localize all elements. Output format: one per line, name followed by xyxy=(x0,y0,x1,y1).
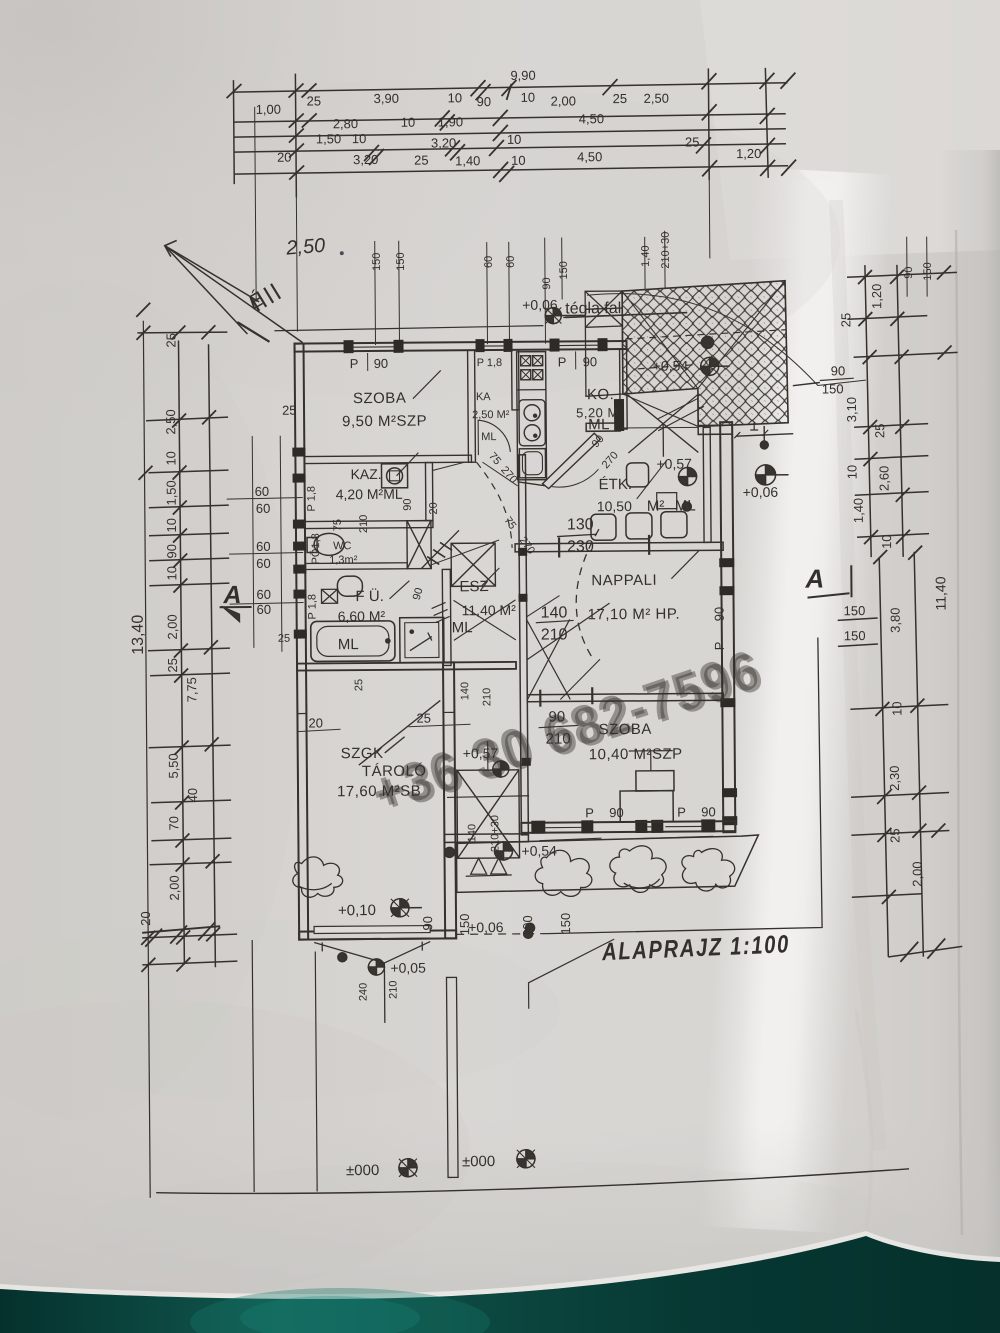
svg-text:+0,54: +0,54 xyxy=(521,843,557,859)
svg-text:25: 25 xyxy=(414,153,429,168)
svg-text:3,80: 3,80 xyxy=(888,608,903,633)
svg-text:10: 10 xyxy=(507,132,522,147)
svg-text:10,50: 10,50 xyxy=(597,498,632,514)
svg-text:2,80: 2,80 xyxy=(333,116,358,131)
svg-text:11,40: 11,40 xyxy=(932,576,948,610)
svg-text:10: 10 xyxy=(164,518,179,533)
svg-text:P: P xyxy=(585,805,594,820)
svg-text:70: 70 xyxy=(166,816,181,831)
svg-text:SZGK: SZGK xyxy=(341,745,384,762)
svg-text:5,50: 5,50 xyxy=(166,753,181,778)
svg-text:10: 10 xyxy=(879,534,894,549)
svg-text:90: 90 xyxy=(701,804,716,819)
svg-text:+0,05: +0,05 xyxy=(390,960,426,976)
svg-text:60: 60 xyxy=(255,484,270,499)
svg-text:10: 10 xyxy=(401,115,416,130)
svg-text:1,40: 1,40 xyxy=(640,245,652,267)
svg-text:10: 10 xyxy=(889,701,904,716)
svg-text:ML: ML xyxy=(675,497,696,514)
svg-text:90: 90 xyxy=(831,363,846,378)
svg-text:90: 90 xyxy=(583,354,598,369)
svg-text:±000: ±000 xyxy=(346,1162,379,1179)
svg-text:150: 150 xyxy=(558,261,570,279)
svg-text:A: A xyxy=(804,563,824,593)
svg-text:90: 90 xyxy=(402,498,414,510)
svg-text:150: 150 xyxy=(822,381,844,396)
svg-text:+0,06: +0,06 xyxy=(522,297,558,313)
svg-text:60: 60 xyxy=(257,602,272,617)
svg-text:210+30: 210+30 xyxy=(660,232,672,269)
svg-text:10: 10 xyxy=(844,465,859,480)
svg-text:2,50: 2,50 xyxy=(284,235,326,260)
svg-text:P: P xyxy=(558,354,567,369)
svg-text:90: 90 xyxy=(541,277,553,289)
svg-text:40: 40 xyxy=(185,788,200,803)
svg-text:150: 150 xyxy=(371,253,383,271)
svg-text:90: 90 xyxy=(420,916,435,931)
svg-text:KA: KA xyxy=(476,391,491,403)
svg-text:90: 90 xyxy=(374,356,389,371)
svg-text:90: 90 xyxy=(712,607,727,622)
svg-text:60: 60 xyxy=(256,587,271,602)
svg-text:10: 10 xyxy=(352,131,367,146)
svg-text:25: 25 xyxy=(165,658,180,673)
svg-text:WC: WC xyxy=(333,540,351,552)
svg-text:140: 140 xyxy=(459,682,471,700)
svg-text:150: 150 xyxy=(558,913,573,935)
svg-text:210: 210 xyxy=(481,688,493,706)
svg-text:F Ü.: F Ü. xyxy=(355,587,383,605)
svg-text:9,90: 9,90 xyxy=(510,68,535,83)
svg-text:P 1,8: P 1,8 xyxy=(306,486,318,512)
svg-text:25: 25 xyxy=(613,91,628,106)
svg-text:11,40 M²: 11,40 M² xyxy=(462,602,517,618)
svg-text:140: 140 xyxy=(466,824,478,842)
svg-text:7,75: 7,75 xyxy=(184,677,199,702)
svg-text:ML: ML xyxy=(588,416,610,433)
svg-text:2,00: 2,00 xyxy=(165,614,180,639)
svg-text:20: 20 xyxy=(277,150,292,165)
svg-text:2,50: 2,50 xyxy=(644,91,669,106)
svg-text:210: 210 xyxy=(358,515,370,533)
svg-text:4,20 M²ML: 4,20 M²ML xyxy=(336,486,403,503)
svg-text:1,40: 1,40 xyxy=(455,153,480,168)
svg-text:2,00: 2,00 xyxy=(910,861,925,886)
svg-text:230: 230 xyxy=(567,538,594,555)
svg-text:KO.: KO. xyxy=(587,386,614,403)
svg-text:KAZ.: KAZ. xyxy=(350,466,381,482)
svg-text:1,20: 1,20 xyxy=(869,284,884,309)
svg-text:SZOBA: SZOBA xyxy=(353,390,406,407)
svg-text:P 1,8: P 1,8 xyxy=(477,357,503,369)
svg-text:20: 20 xyxy=(428,502,440,514)
svg-text:ML: ML xyxy=(452,619,473,636)
svg-text:75: 75 xyxy=(332,519,344,531)
svg-text:+0,57: +0,57 xyxy=(656,455,692,471)
svg-text:150: 150 xyxy=(844,603,866,618)
svg-text:+0,54: +0,54 xyxy=(653,358,689,374)
svg-text:150: 150 xyxy=(395,252,407,270)
svg-text:60: 60 xyxy=(256,501,271,516)
svg-text:240: 240 xyxy=(358,983,370,1001)
svg-text:2,50: 2,50 xyxy=(163,409,178,434)
svg-text:3,10: 3,10 xyxy=(844,397,859,422)
svg-text:2,60: 2,60 xyxy=(876,466,891,491)
svg-text:10: 10 xyxy=(163,451,178,466)
svg-text:130: 130 xyxy=(567,516,594,533)
svg-text:tégla fal: tégla fal xyxy=(565,300,621,317)
svg-text:60: 60 xyxy=(256,539,271,554)
svg-text:+0,06: +0,06 xyxy=(468,919,504,935)
svg-text:210: 210 xyxy=(388,980,400,998)
svg-text:17,10 M² HP.: 17,10 M² HP. xyxy=(588,606,681,624)
svg-text:13,40: 13,40 xyxy=(130,615,147,655)
svg-text:1,50: 1,50 xyxy=(164,480,179,505)
svg-text:25: 25 xyxy=(282,403,297,418)
svg-text:A: A xyxy=(222,581,241,609)
svg-text:1,20: 1,20 xyxy=(736,146,761,161)
svg-text:25: 25 xyxy=(163,333,178,348)
svg-text:M²: M² xyxy=(647,498,665,515)
svg-text:2,00: 2,00 xyxy=(551,93,576,108)
svg-text:P 1,8: P 1,8 xyxy=(306,594,318,620)
svg-text:+0,10: +0,10 xyxy=(338,902,376,919)
svg-text:NAPPALI: NAPPALI xyxy=(591,572,657,590)
svg-text:ÉTK.: ÉTK. xyxy=(599,476,632,493)
svg-text:1,50: 1,50 xyxy=(316,131,341,146)
svg-text:2,50 M²: 2,50 M² xyxy=(472,409,510,421)
svg-text:1,00: 1,00 xyxy=(256,102,281,117)
svg-text:150: 150 xyxy=(457,914,472,936)
svg-text:25: 25 xyxy=(307,93,322,108)
svg-text:20: 20 xyxy=(138,911,153,926)
svg-text:ML: ML xyxy=(338,636,359,653)
svg-text:90: 90 xyxy=(164,544,179,559)
svg-text:25: 25 xyxy=(887,828,902,843)
svg-text:9,50 M²SZP: 9,50 M²SZP xyxy=(342,413,427,431)
svg-text:90: 90 xyxy=(609,805,624,820)
svg-text:210: 210 xyxy=(541,626,568,643)
svg-text:PÖ1,8: PÖ1,8 xyxy=(310,533,322,564)
svg-text:10: 10 xyxy=(448,90,463,105)
svg-text:2,00: 2,00 xyxy=(167,875,182,900)
svg-text:ML: ML xyxy=(481,431,496,443)
svg-text:210+30: 210+30 xyxy=(489,815,501,852)
svg-text:3,90: 3,90 xyxy=(374,91,399,106)
svg-text:1,40: 1,40 xyxy=(851,498,866,523)
svg-text:25: 25 xyxy=(416,711,431,726)
svg-text:60: 60 xyxy=(483,256,495,268)
svg-text:1,3m²: 1,3m² xyxy=(329,554,358,566)
svg-text:10: 10 xyxy=(521,90,536,105)
svg-text:1,90: 1,90 xyxy=(438,114,463,129)
svg-text:3,20: 3,20 xyxy=(431,135,456,150)
svg-text:150: 150 xyxy=(922,262,934,280)
svg-text:±000: ±000 xyxy=(462,1153,495,1170)
svg-text:ESZ: ESZ xyxy=(459,578,488,595)
svg-text:25: 25 xyxy=(872,423,887,438)
svg-text:4,50: 4,50 xyxy=(577,149,602,164)
svg-text:20: 20 xyxy=(308,715,323,730)
svg-text:25: 25 xyxy=(278,633,290,645)
svg-text:60: 60 xyxy=(256,556,271,571)
svg-text:3,20: 3,20 xyxy=(353,152,378,167)
svg-text:90: 90 xyxy=(477,94,492,109)
svg-text:10: 10 xyxy=(164,566,179,581)
svg-text:6,60 M²: 6,60 M² xyxy=(338,608,386,624)
svg-text:4,50: 4,50 xyxy=(579,111,604,126)
svg-text:25: 25 xyxy=(353,679,365,691)
svg-text:60: 60 xyxy=(505,256,517,268)
svg-text:25: 25 xyxy=(838,313,853,328)
svg-text:25: 25 xyxy=(685,134,700,149)
svg-text:90: 90 xyxy=(520,915,535,930)
svg-text:10: 10 xyxy=(511,153,526,168)
svg-text:150: 150 xyxy=(844,628,866,643)
svg-text:90: 90 xyxy=(903,266,915,278)
svg-text:P: P xyxy=(350,356,359,371)
svg-text:140: 140 xyxy=(541,604,568,621)
svg-text:P: P xyxy=(677,805,686,820)
svg-text:2,30: 2,30 xyxy=(887,766,902,791)
svg-text:+0,06: +0,06 xyxy=(743,484,779,500)
